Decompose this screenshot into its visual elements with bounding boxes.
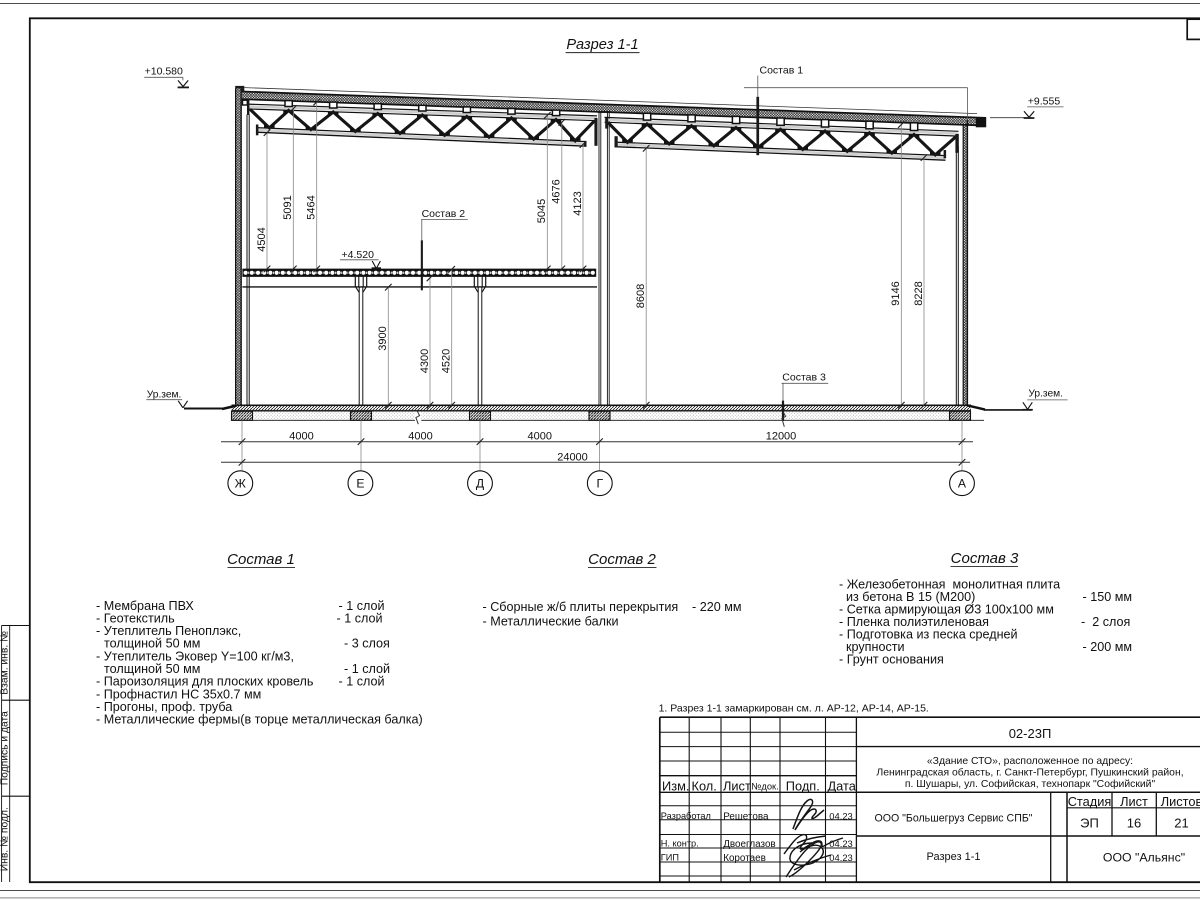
- svg-text:Ж: Ж: [235, 477, 247, 491]
- svg-text:4504: 4504: [256, 227, 268, 251]
- svg-text:Состав 2: Состав 2: [588, 551, 656, 568]
- svg-text:№док.: №док.: [751, 781, 778, 792]
- svg-text:Дата: Дата: [828, 778, 857, 793]
- svg-text:Двоеглазов: Двоеглазов: [723, 839, 776, 850]
- svg-text:04.23: 04.23: [829, 811, 852, 822]
- svg-text:Кол.: Кол.: [692, 778, 717, 793]
- svg-text:Разрез 1-1: Разрез 1-1: [566, 37, 638, 53]
- svg-text:- Грунт основания: - Грунт основания: [839, 653, 944, 667]
- svg-text:Ур.зем.: Ур.зем.: [1028, 389, 1063, 400]
- svg-text:Состав 3: Состав 3: [782, 371, 826, 383]
- svg-text:5091: 5091: [282, 195, 294, 219]
- svg-text:Лист: Лист: [1120, 794, 1148, 809]
- svg-text:Состав 3: Состав 3: [951, 550, 1019, 567]
- svg-text:Состав 1: Состав 1: [227, 551, 295, 568]
- svg-text:8608: 8608: [635, 284, 647, 308]
- svg-text:Д: Д: [476, 477, 485, 491]
- svg-text:4000: 4000: [528, 430, 552, 442]
- svg-text:04.23: 04.23: [829, 852, 852, 863]
- svg-text:04.23: 04.23: [829, 838, 852, 849]
- svg-text:«Здание СТО», расположенное по: «Здание СТО», расположенное по адресу:: [927, 756, 1133, 767]
- svg-text:Инв. № подл.: Инв. № подл.: [0, 807, 11, 871]
- svg-text:24000: 24000: [557, 451, 588, 463]
- svg-text:12000: 12000: [766, 430, 797, 442]
- svg-text:- 150 мм: - 150 мм: [1083, 590, 1133, 604]
- svg-text:+4.520: +4.520: [342, 249, 375, 261]
- svg-text:5045: 5045: [536, 199, 548, 223]
- svg-text:Листов: Листов: [1161, 794, 1200, 809]
- svg-text:- 220 мм: - 220 мм: [692, 600, 742, 614]
- svg-text:- 3 слоя: - 3 слоя: [344, 637, 390, 651]
- svg-text:- 200 мм: - 200 мм: [1083, 640, 1133, 654]
- svg-text:Подпись и дата: Подпись и дата: [0, 711, 11, 785]
- svg-text:Решетова: Решетова: [723, 812, 769, 823]
- svg-text:+10.580: +10.580: [145, 66, 183, 78]
- svg-text:21: 21: [1174, 816, 1188, 831]
- svg-text:Разрез 1-1: Разрез 1-1: [926, 851, 980, 863]
- svg-text:Лист: Лист: [723, 778, 751, 793]
- svg-text:4123: 4123: [572, 191, 584, 215]
- svg-text:4520: 4520: [441, 349, 453, 373]
- svg-text:+9.555: +9.555: [1028, 95, 1061, 107]
- svg-text:4000: 4000: [408, 430, 432, 442]
- svg-text:Стадия: Стадия: [1068, 794, 1112, 809]
- svg-text:- Сборные ж/б плиты перекрытия: - Сборные ж/б плиты перекрытия: [483, 600, 679, 614]
- svg-text:3900: 3900: [377, 326, 389, 350]
- svg-text:16: 16: [1127, 816, 1141, 831]
- svg-text:4000: 4000: [289, 430, 313, 442]
- svg-text:Е: Е: [356, 477, 364, 491]
- svg-text:Состав 2: Состав 2: [422, 208, 466, 220]
- svg-text:- 1 слой: - 1 слой: [339, 675, 385, 689]
- svg-text:Взам. инв. №: Взам. инв. №: [0, 631, 11, 695]
- svg-text:- 2 слоя: - 2 слоя: [1081, 615, 1130, 629]
- svg-text:Изм.: Изм.: [662, 778, 689, 793]
- svg-text:п. Шушары, ул. Софийская, техн: п. Шушары, ул. Софийская, технопарк "Соф…: [905, 778, 1156, 790]
- svg-text:Подп.: Подп.: [786, 778, 820, 793]
- svg-text:ГИП: ГИП: [661, 852, 679, 862]
- svg-text:- Металлические балки: - Металлические балки: [483, 615, 619, 629]
- svg-text:ЭП: ЭП: [1080, 816, 1099, 831]
- svg-text:Ур.зем.: Ур.зем.: [147, 389, 182, 400]
- svg-text:ООО "Альянс": ООО "Альянс": [1103, 851, 1185, 865]
- svg-text:8228: 8228: [913, 281, 925, 305]
- svg-text:Разработал: Разработал: [661, 811, 711, 821]
- svg-text:ООО "Большегруз Сервис СПБ": ООО "Большегруз Сервис СПБ": [874, 812, 1032, 824]
- svg-text:5464: 5464: [306, 195, 318, 219]
- svg-text:4676: 4676: [551, 179, 563, 203]
- svg-text:02-23П: 02-23П: [1009, 726, 1052, 741]
- svg-text:Состав 1: Состав 1: [760, 64, 804, 76]
- svg-text:Коротаев: Коротаев: [723, 853, 766, 864]
- svg-text:Н. контр.: Н. контр.: [661, 838, 699, 848]
- svg-text:4300: 4300: [419, 349, 431, 373]
- svg-text:- Металлические фермы(в торце: - Металлические фермы(в торце металличес…: [96, 713, 423, 727]
- svg-text:А: А: [958, 477, 967, 491]
- svg-text:Г: Г: [596, 477, 603, 491]
- svg-text:Ленинградская область, г. Санк: Ленинградская область, г. Санкт-Петербур…: [876, 767, 1183, 779]
- svg-text:1. Разрез 1-1 замаркирован см.: 1. Разрез 1-1 замаркирован см. л. АР-12,…: [659, 702, 929, 714]
- svg-text:- 1 слой: - 1 слой: [337, 611, 383, 625]
- svg-text:9146: 9146: [890, 281, 902, 305]
